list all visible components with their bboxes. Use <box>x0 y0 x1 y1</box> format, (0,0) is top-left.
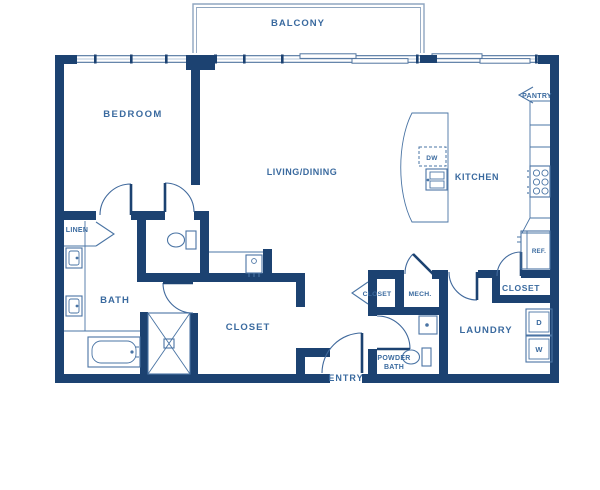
linen-door <box>96 222 114 246</box>
appliance-label-refrigerator: REF. <box>532 248 546 255</box>
kitchen-counter <box>522 101 550 233</box>
kitchen-closet-door <box>497 252 521 276</box>
appliance-label-dishwasher: DW <box>426 155 438 162</box>
closet-door-from-bath <box>163 283 193 313</box>
room-label-powder-bath-line2: BATH <box>384 364 404 371</box>
mech-door <box>405 254 433 274</box>
island-sink-icon <box>426 169 447 190</box>
room-label-bath: BATH <box>100 295 130 306</box>
appliance-label-washer: W <box>535 345 543 354</box>
labels: BALCONY BEDROOM LIVING/DINING KITCHEN PA… <box>66 18 552 383</box>
room-label-pantry: PANTRY <box>522 93 552 100</box>
floor-plan: BALCONY BEDROOM LIVING/DINING KITCHEN PA… <box>0 0 600 490</box>
room-label-kitchen: KITCHEN <box>455 172 499 182</box>
room-label-laundry: LAUNDRY <box>459 325 512 336</box>
room-label-powder-bath-line1: POWDER <box>377 355 410 362</box>
window-band <box>64 54 550 64</box>
kitchen-island <box>401 113 448 222</box>
stove-icon <box>527 166 550 197</box>
bath-sink-icon <box>66 248 82 268</box>
bedroom-door <box>100 184 131 215</box>
powder-sink-icon <box>419 316 437 334</box>
room-label-living-dining: LIVING/DINING <box>267 167 338 177</box>
laundry-door <box>449 272 477 300</box>
toilet-icon <box>168 231 197 249</box>
powder-bath-door <box>377 316 410 349</box>
floor-plan-page: BALCONY BEDROOM LIVING/DINING KITCHEN PA… <box>0 0 600 490</box>
bath-sink-icon <box>66 296 82 316</box>
bathtub-icon <box>88 337 140 367</box>
room-label-bedroom-closet: CLOSET <box>226 322 271 333</box>
room-label-bedroom: BEDROOM <box>103 109 162 120</box>
room-label-hall-closet: CLOSET <box>363 291 392 298</box>
room-label-kitchen-closet: CLOSET <box>502 283 540 293</box>
water-closet-door <box>165 183 194 212</box>
room-label-balcony: BALCONY <box>271 18 325 29</box>
bath-vanity <box>64 221 140 331</box>
room-label-entry: ENTRY <box>328 373 363 383</box>
shower-icon <box>148 313 190 374</box>
room-label-mech: MECH. <box>409 291 432 298</box>
appliance-label-dryer: D <box>536 318 542 327</box>
room-label-linen: LINEN <box>66 227 89 234</box>
